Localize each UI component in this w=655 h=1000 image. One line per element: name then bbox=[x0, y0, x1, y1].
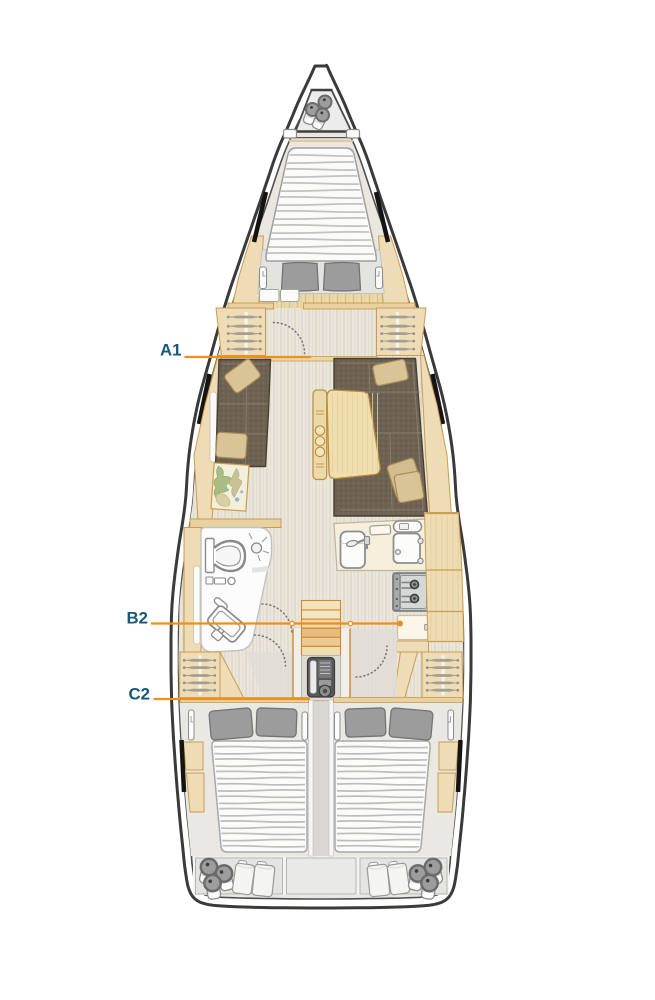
svg-text:C2: C2 bbox=[129, 685, 150, 704]
svg-text:A1: A1 bbox=[160, 341, 181, 360]
svg-text:B2: B2 bbox=[127, 609, 148, 628]
